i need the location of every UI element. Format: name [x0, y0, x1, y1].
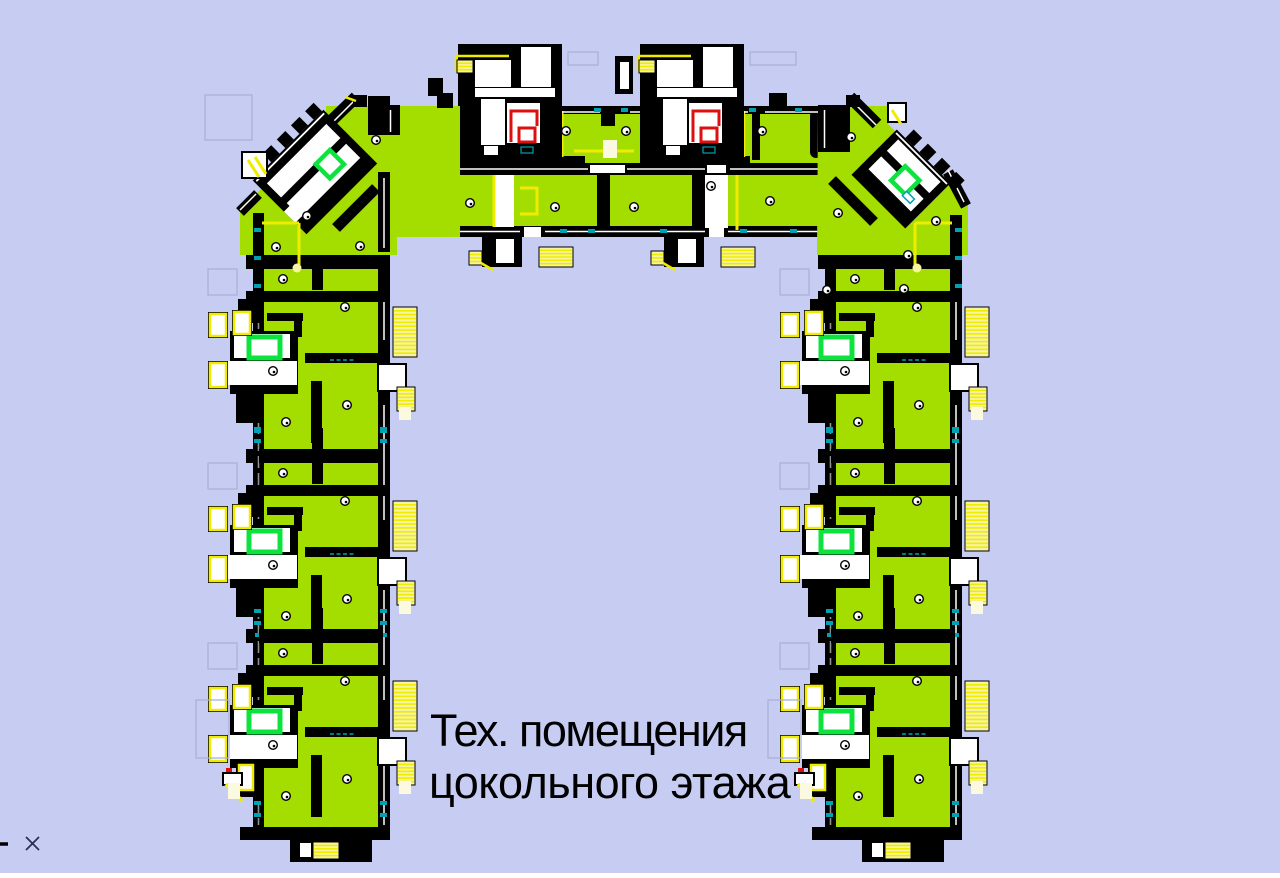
svg-text:цокольного этажа: цокольного этажа — [429, 757, 792, 808]
svg-text:Тех. помещения: Тех. помещения — [430, 705, 747, 756]
